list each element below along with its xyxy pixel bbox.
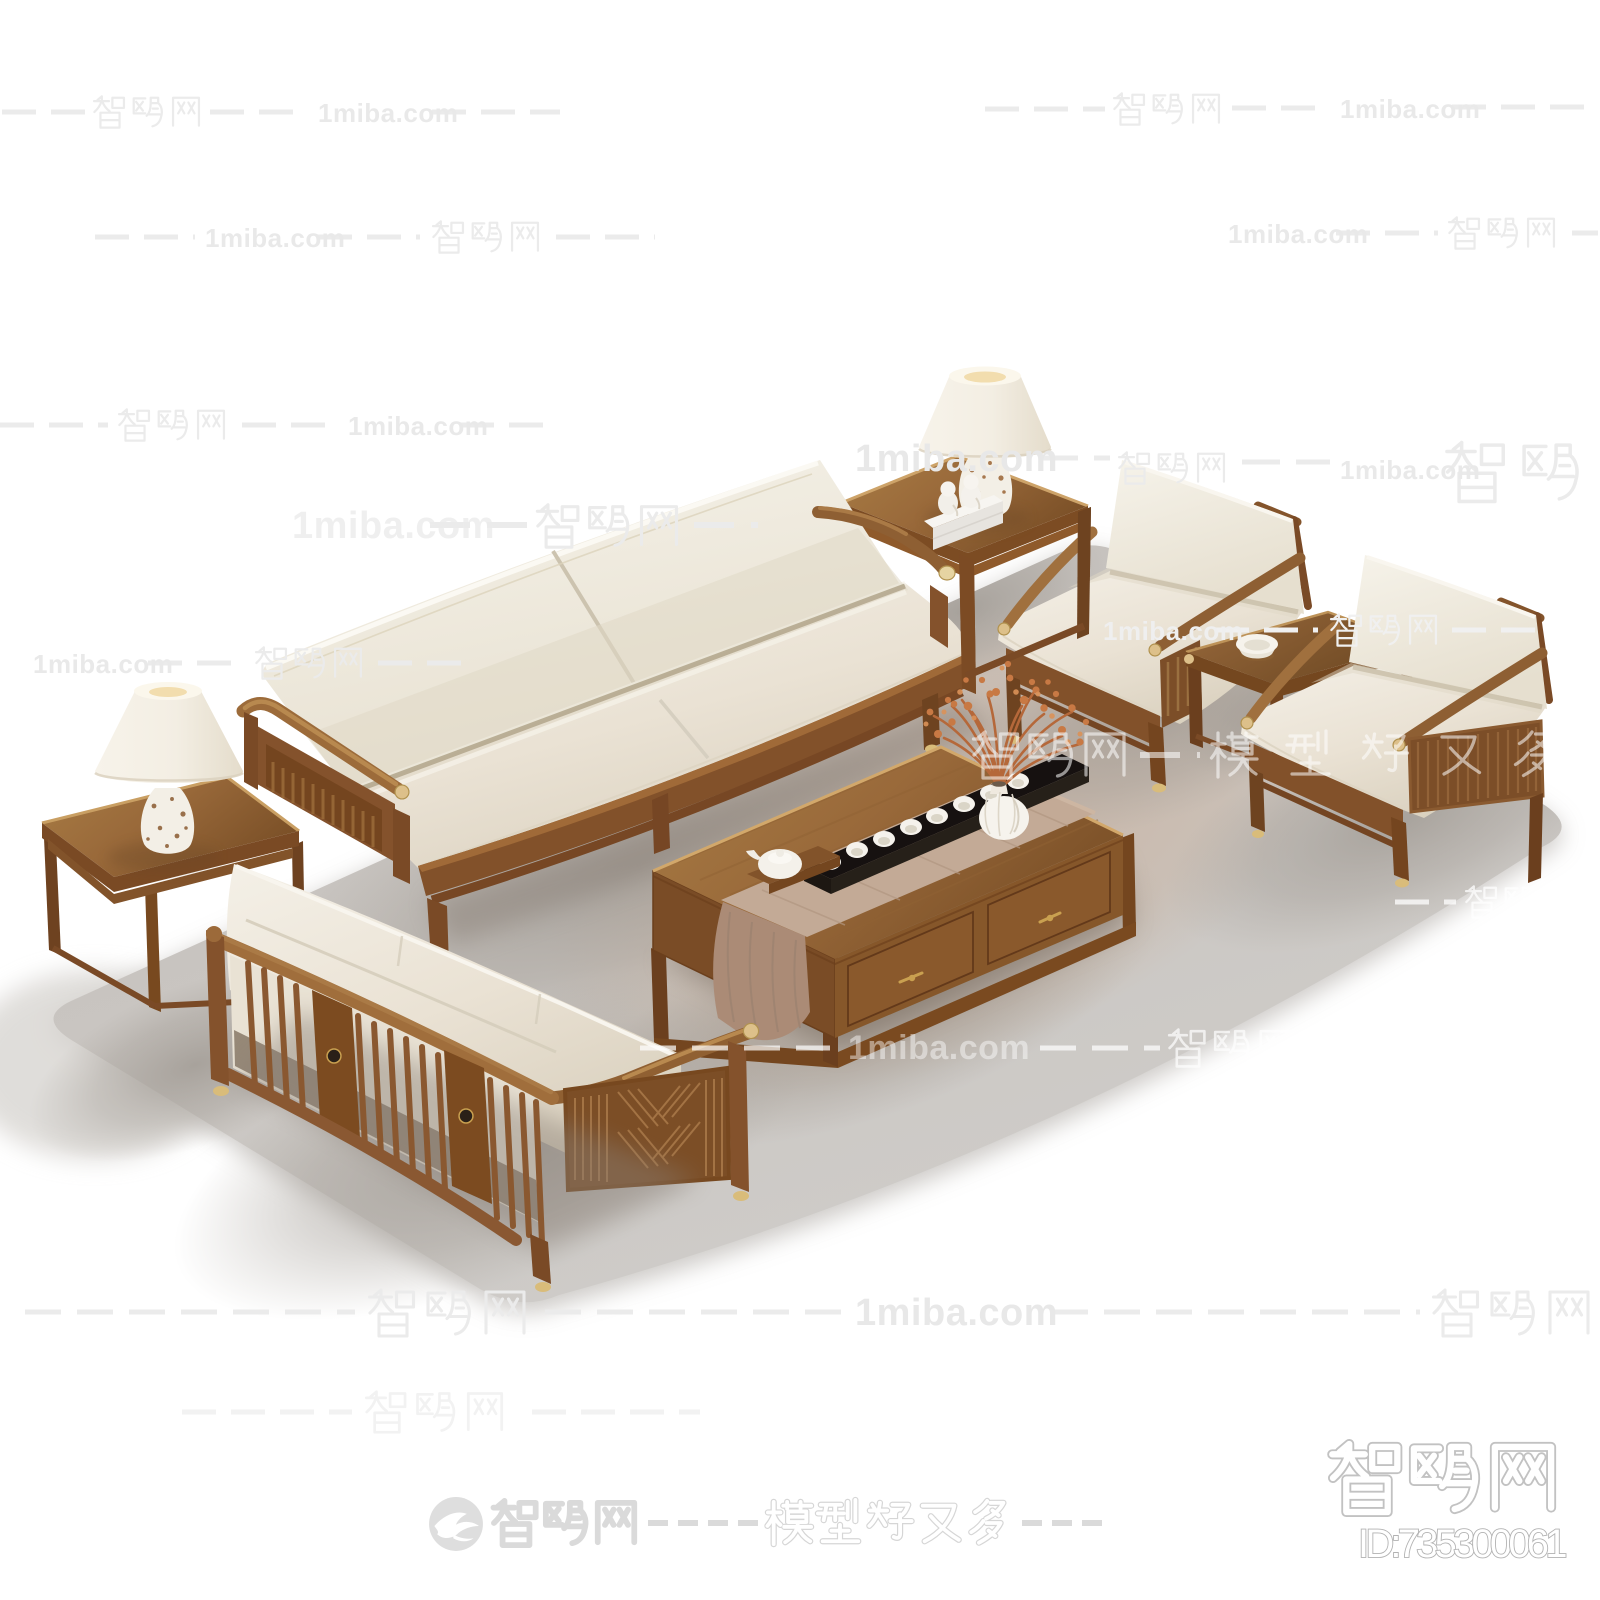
svg-text:1miba.com: 1miba.com [855,438,1058,480]
svg-text:1miba.com: 1miba.com [33,649,173,679]
svg-text:1miba.com: 1miba.com [205,223,345,253]
svg-text:1miba.com: 1miba.com [292,505,495,547]
svg-text:1miba.com: 1miba.com [318,98,458,128]
svg-text:1miba.com: 1miba.com [348,411,488,441]
svg-text:1miba.com: 1miba.com [1228,219,1368,249]
svg-text:1miba.com: 1miba.com [848,1029,1030,1067]
svg-text:ID:735300061: ID:735300061 [1358,1522,1568,1566]
svg-text:1miba.com: 1miba.com [1340,94,1480,124]
svg-text:1miba.com: 1miba.com [855,1292,1058,1334]
svg-text:1miba.com: 1miba.com [1340,455,1480,485]
svg-text:1miba.com: 1miba.com [1103,616,1243,646]
